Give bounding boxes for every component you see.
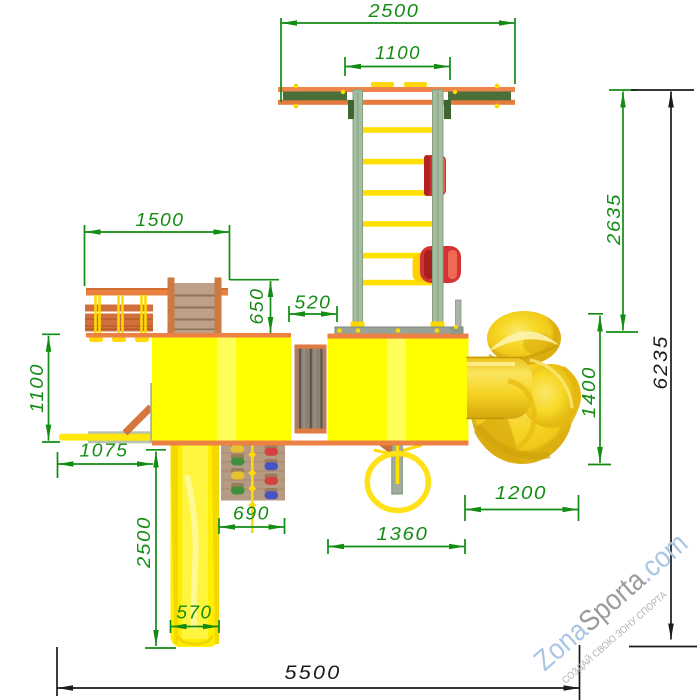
svg-text:5500: 5500	[285, 663, 342, 684]
svg-text:2500: 2500	[367, 0, 419, 21]
svg-text:1360: 1360	[377, 523, 429, 544]
svg-text:1075: 1075	[80, 440, 129, 461]
svg-text:2500: 2500	[133, 516, 154, 569]
svg-text:690: 690	[233, 503, 270, 524]
svg-text:1400: 1400	[578, 366, 599, 418]
svg-text:1500: 1500	[136, 209, 185, 230]
svg-text:6235: 6235	[651, 335, 672, 390]
svg-text:1200: 1200	[495, 482, 547, 503]
svg-text:1100: 1100	[26, 363, 47, 413]
svg-text:2635: 2635	[603, 193, 624, 246]
svg-text:570: 570	[177, 602, 213, 623]
svg-text:520: 520	[295, 292, 332, 313]
svg-text:1100: 1100	[375, 42, 421, 63]
svg-text:650: 650	[246, 288, 267, 325]
